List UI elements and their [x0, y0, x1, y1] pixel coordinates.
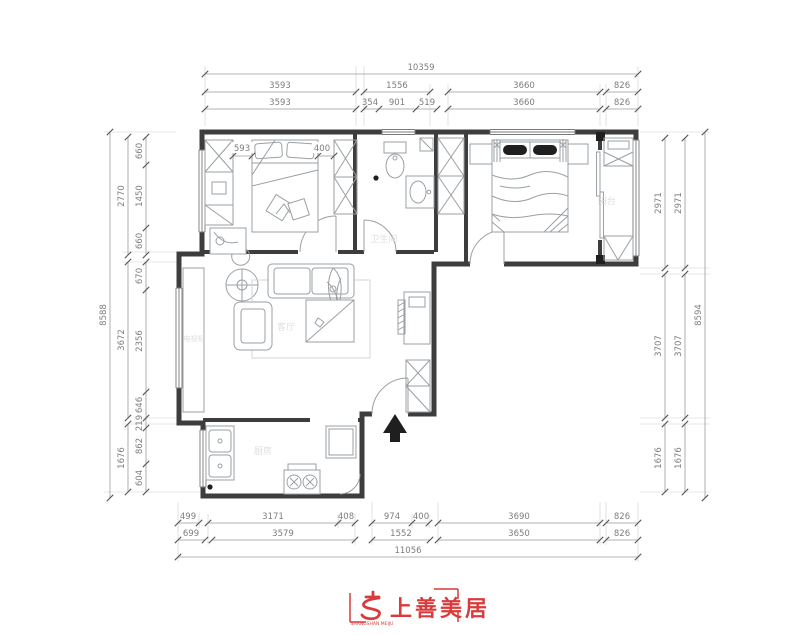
pillow: [533, 145, 557, 155]
bed-double: [492, 139, 568, 232]
label-kitchen: 厨房: [254, 445, 272, 457]
fridge: [326, 426, 356, 458]
dims-top: 10359 3593 1556 3660 826 3593 354 901 51…: [202, 63, 641, 112]
dim: 408: [338, 512, 354, 522]
dim-gap: 400: [314, 144, 330, 154]
dim: 2971: [674, 192, 684, 214]
dim-top-total: 10359: [407, 63, 434, 73]
kitchen-furniture: [206, 426, 360, 494]
dim: 400: [413, 512, 429, 522]
dim: 699: [183, 529, 199, 539]
dim: 3579: [272, 529, 294, 539]
dim: 646: [135, 397, 145, 413]
dim: 3650: [508, 529, 530, 539]
dim-right-total: 8594: [694, 304, 704, 326]
toilet-bowl: [386, 154, 404, 178]
master-door: [470, 230, 504, 264]
dim-bottom-total: 11056: [394, 546, 421, 556]
dim: 1676: [674, 447, 684, 469]
kitchen-door-arc: [340, 474, 360, 494]
basin: [410, 181, 426, 203]
dim: 660: [135, 143, 145, 159]
dim: 1552: [390, 529, 412, 539]
entrance-door: [372, 378, 408, 414]
label-living: 客厅: [277, 321, 295, 333]
dim-left-total: 8588: [99, 304, 109, 326]
dim: 660: [135, 233, 145, 249]
dim: 354: [362, 98, 378, 108]
entrance-arrow: [383, 414, 407, 442]
brand-logo: SHANGSHAN MEIJU 上善美居: [350, 589, 490, 627]
dim: 3171: [262, 512, 284, 522]
dim: 901: [389, 98, 405, 108]
dim: 2356: [135, 330, 145, 352]
sink-basin: [209, 455, 231, 477]
floor-drain: [373, 175, 378, 180]
sink-basin: [209, 430, 231, 452]
dim: 3593: [269, 98, 291, 108]
dim: 826: [614, 512, 630, 522]
toilet-tank: [384, 142, 406, 153]
dim: 670: [135, 268, 145, 284]
bed-single: [252, 140, 318, 232]
pillow: [503, 145, 527, 155]
dim: 1676: [117, 447, 127, 469]
dim: 826: [614, 98, 630, 108]
dim: 974: [384, 512, 400, 522]
dim: 519: [419, 98, 435, 108]
floor-drain: [207, 484, 212, 489]
coffee-table: [306, 300, 354, 342]
dim: 3672: [117, 329, 127, 351]
dim: 3593: [269, 81, 291, 91]
label-balcony: 阳台: [598, 195, 616, 207]
label-tv-cabinet: 电视柜: [184, 334, 205, 343]
dim: 2971: [654, 192, 664, 214]
balcony-cabinet-bottom: [604, 236, 633, 260]
desk-and-chair: [210, 228, 250, 265]
dim: 3707: [654, 335, 664, 357]
bedroom1-furniture: [205, 140, 357, 265]
sideboard: [398, 292, 430, 344]
hall-closet: [438, 138, 464, 214]
dims-right: 2971 3707 1676 2971 3707 1676 8594: [654, 129, 708, 501]
hall-cabinet: [406, 360, 430, 412]
sink-counter: [206, 426, 234, 480]
dim: 1556: [386, 81, 408, 91]
living-room-furniture: [183, 264, 430, 412]
floor-plan-drawing: 卫生间 阳台 厨房 客厅 电视柜 10359 3593 1556 3660 82…: [0, 0, 800, 635]
armchair: [234, 302, 272, 350]
master-bedroom-furniture: [470, 139, 588, 232]
dim: 3660: [513, 81, 535, 91]
extension-lines-top: [205, 66, 638, 126]
dim-wardrobe: 593: [234, 144, 250, 154]
dim: 3707: [674, 335, 684, 357]
dims-bottom: 499 3171 408 974 400 3690 826 699 3579 1…: [175, 512, 641, 560]
dim: 1676: [654, 447, 664, 469]
nightstand-right: [566, 144, 588, 164]
dim: 1450: [135, 185, 145, 207]
dim: 826: [614, 81, 630, 91]
dim: 499: [180, 512, 196, 522]
dim: 2770: [117, 185, 127, 207]
stove: [284, 464, 320, 494]
logo-name: 上善美居: [390, 596, 490, 622]
dim: 3660: [513, 98, 535, 108]
dim: 862: [135, 438, 145, 454]
round-table: [226, 269, 258, 301]
logo-subtext: SHANGSHAN MEIJU: [351, 621, 394, 627]
floor-plan-page: 卫生间 阳台 厨房 客厅 电视柜 10359 3593 1556 3660 82…: [0, 0, 800, 635]
label-bathroom: 卫生间: [370, 233, 397, 245]
dim: 219: [135, 415, 145, 431]
dims-left: 8588 2770 3672 1676 660 1450 660 670 235…: [99, 129, 149, 501]
dim: 3690: [508, 512, 530, 522]
nightstand-left: [470, 144, 492, 164]
dim: 604: [135, 470, 145, 486]
bathroom-fixtures: [373, 138, 434, 208]
logo-glyph: SHANGSHAN MEIJU: [351, 592, 394, 627]
dim: 826: [614, 529, 630, 539]
